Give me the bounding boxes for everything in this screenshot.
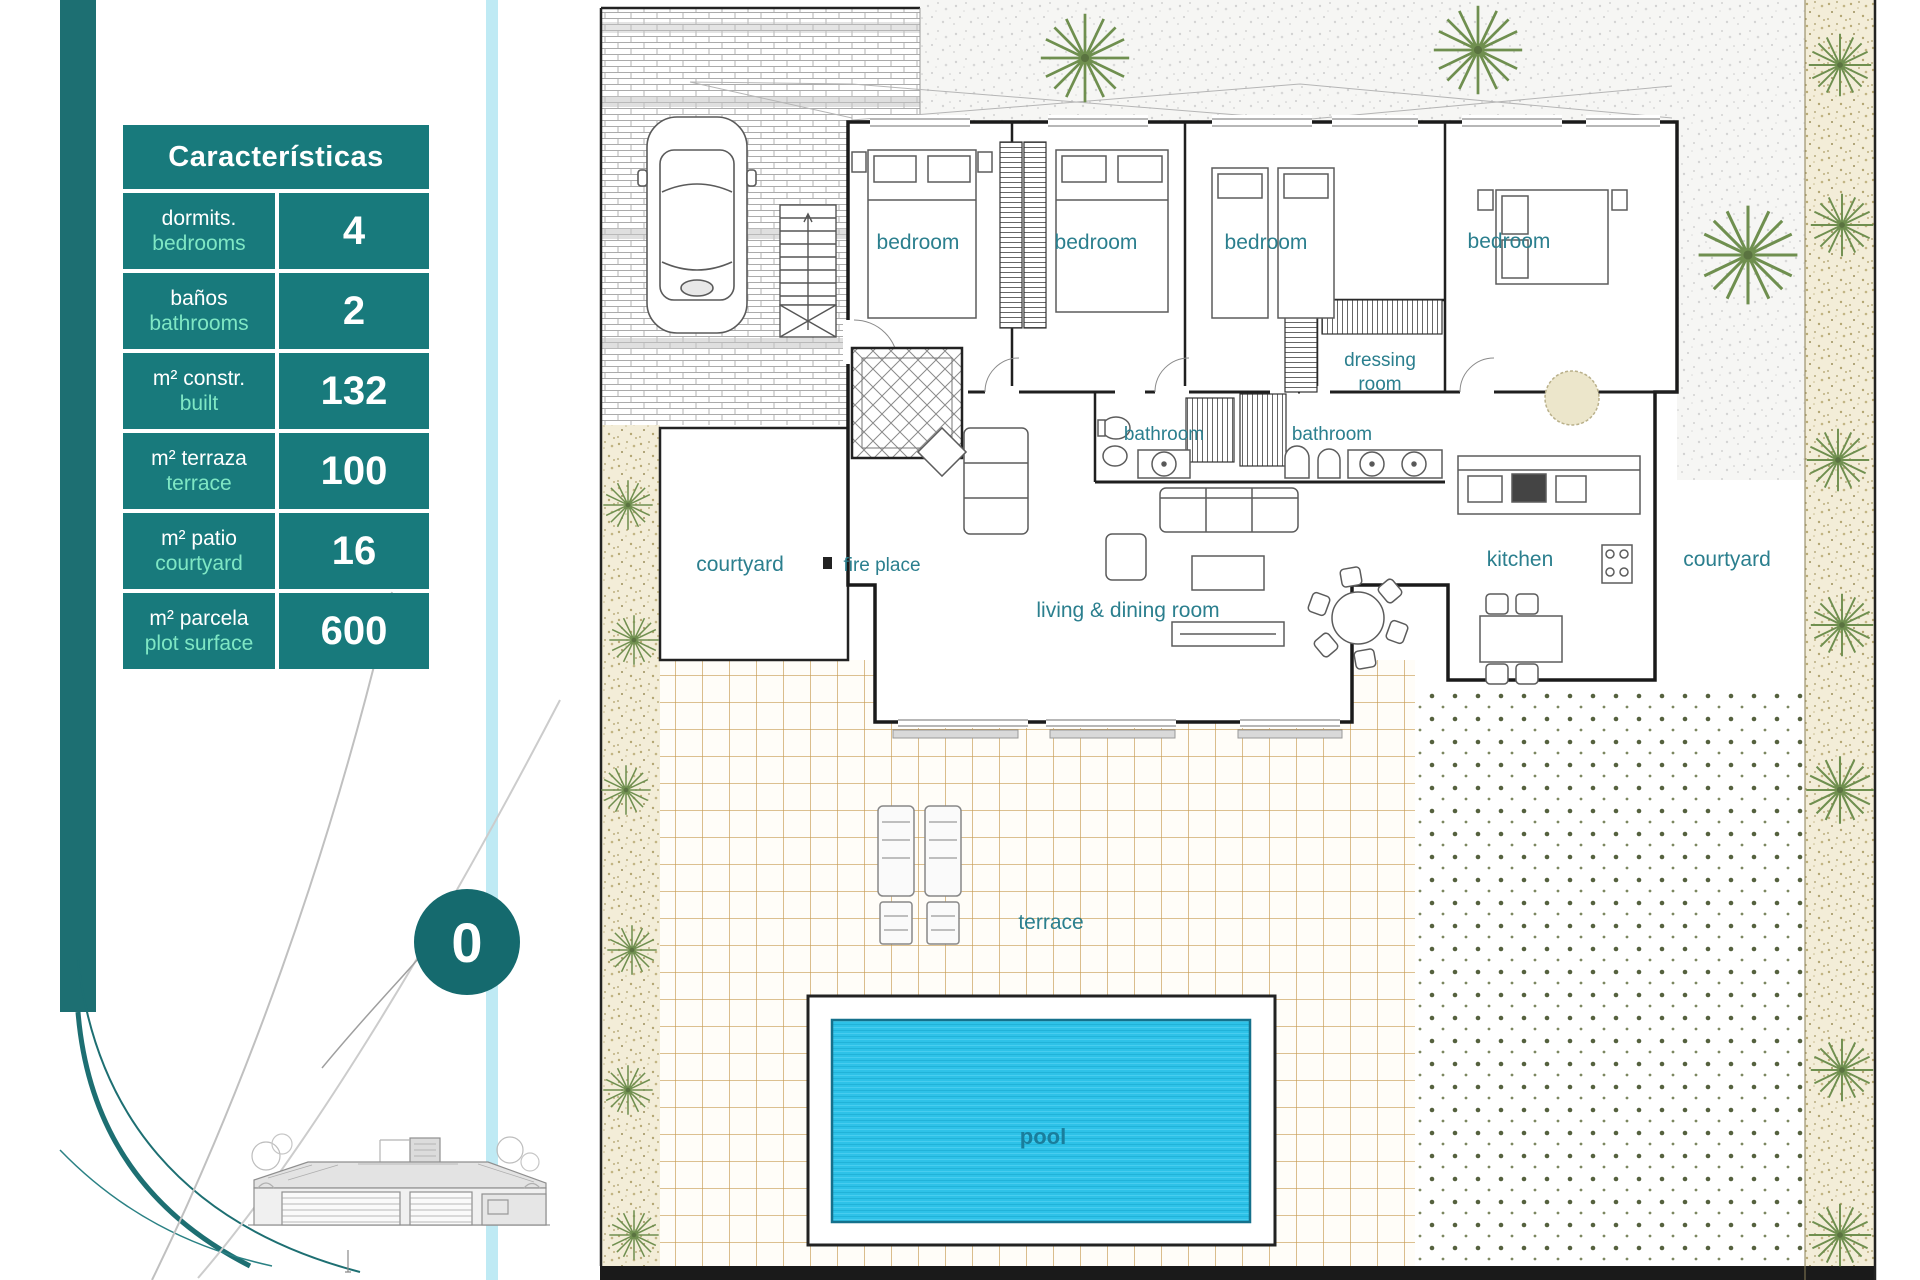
lawn-dotted <box>1415 690 1805 1266</box>
row-label-en: plot surface <box>145 631 254 656</box>
row-label-en: courtyard <box>155 551 243 576</box>
table-title: Características <box>123 125 429 189</box>
row-value: 100 <box>279 433 429 509</box>
row-label-es: m² patio <box>161 526 237 551</box>
garden-bush <box>1545 371 1599 425</box>
label-courtyard-right: courtyard <box>1683 548 1771 571</box>
label-bedroom-1: bedroom <box>877 231 960 254</box>
table-row: baños bathrooms 2 <box>123 273 429 349</box>
label-living-dining: living & dining room <box>1036 599 1219 622</box>
plot-bottom-wall <box>600 1266 1876 1280</box>
courtyard-left-area <box>660 428 848 660</box>
page-divider-line <box>486 0 498 1280</box>
floor-number-badge: 0 <box>414 889 520 995</box>
bidet-2 <box>1318 449 1340 478</box>
pool <box>808 996 1275 1245</box>
row-label-en: bedrooms <box>152 231 245 256</box>
dining-table <box>1332 592 1384 644</box>
row-label-es: baños <box>170 286 227 311</box>
bidet-1 <box>1103 446 1127 466</box>
row-label-en: bathrooms <box>149 311 248 336</box>
row-value: 4 <box>279 193 429 269</box>
row-value: 132 <box>279 353 429 429</box>
label-dressing-2: room <box>1358 374 1401 395</box>
label-kitchen: kitchen <box>1487 548 1554 571</box>
row-label-es: m² terraza <box>151 446 247 471</box>
toilet-2 <box>1285 446 1309 478</box>
sofa-large <box>1160 488 1298 532</box>
sofa-fireplace <box>964 428 1028 534</box>
table-row: m² patio courtyard 16 <box>123 513 429 589</box>
row-label-en: terrace <box>166 471 231 496</box>
brochure-page: { "characteristics_table": { "title": "C… <box>0 0 1920 1280</box>
label-dressing-1: dressing <box>1344 350 1416 371</box>
row-label-es: m² constr. <box>153 366 245 391</box>
stove <box>1602 545 1632 583</box>
label-bedroom-4: bedroom <box>1468 230 1551 253</box>
label-bathroom-2: bathroom <box>1292 424 1372 445</box>
table-row: m² terraza terrace 100 <box>123 433 429 509</box>
row-label-es: dormits. <box>162 206 237 231</box>
gravel-strip-left <box>602 425 660 1280</box>
label-terrace: terrace <box>1018 911 1083 934</box>
label-courtyard-left: courtyard <box>696 553 784 576</box>
label-fire-place: fire place <box>843 555 920 576</box>
armchair <box>1106 534 1146 580</box>
label-bathroom-1: bathroom <box>1124 424 1204 445</box>
kitchen-table <box>1480 616 1562 662</box>
teal-side-bar <box>60 0 96 1012</box>
coffee-table <box>1192 556 1264 590</box>
gravel-strip-right <box>1805 0 1876 1280</box>
row-value: 16 <box>279 513 429 589</box>
car <box>638 117 756 333</box>
label-bedroom-3: bedroom <box>1225 231 1308 254</box>
entry-stairs <box>780 205 836 337</box>
label-pool: pool <box>1020 1124 1066 1149</box>
terrace-doors <box>893 716 1342 738</box>
label-bedroom-2: bedroom <box>1055 231 1138 254</box>
row-value: 600 <box>279 593 429 669</box>
row-label-es: m² parcela <box>149 606 248 631</box>
table-row: m² parcela plot surface 600 <box>123 593 429 669</box>
row-label-en: built <box>180 391 219 416</box>
table-row: m² constr. built 132 <box>123 353 429 429</box>
characteristics-table: Características dormits. bedrooms 4 baño… <box>123 125 429 673</box>
table-row: dormits. bedrooms 4 <box>123 193 429 269</box>
row-value: 2 <box>279 273 429 349</box>
